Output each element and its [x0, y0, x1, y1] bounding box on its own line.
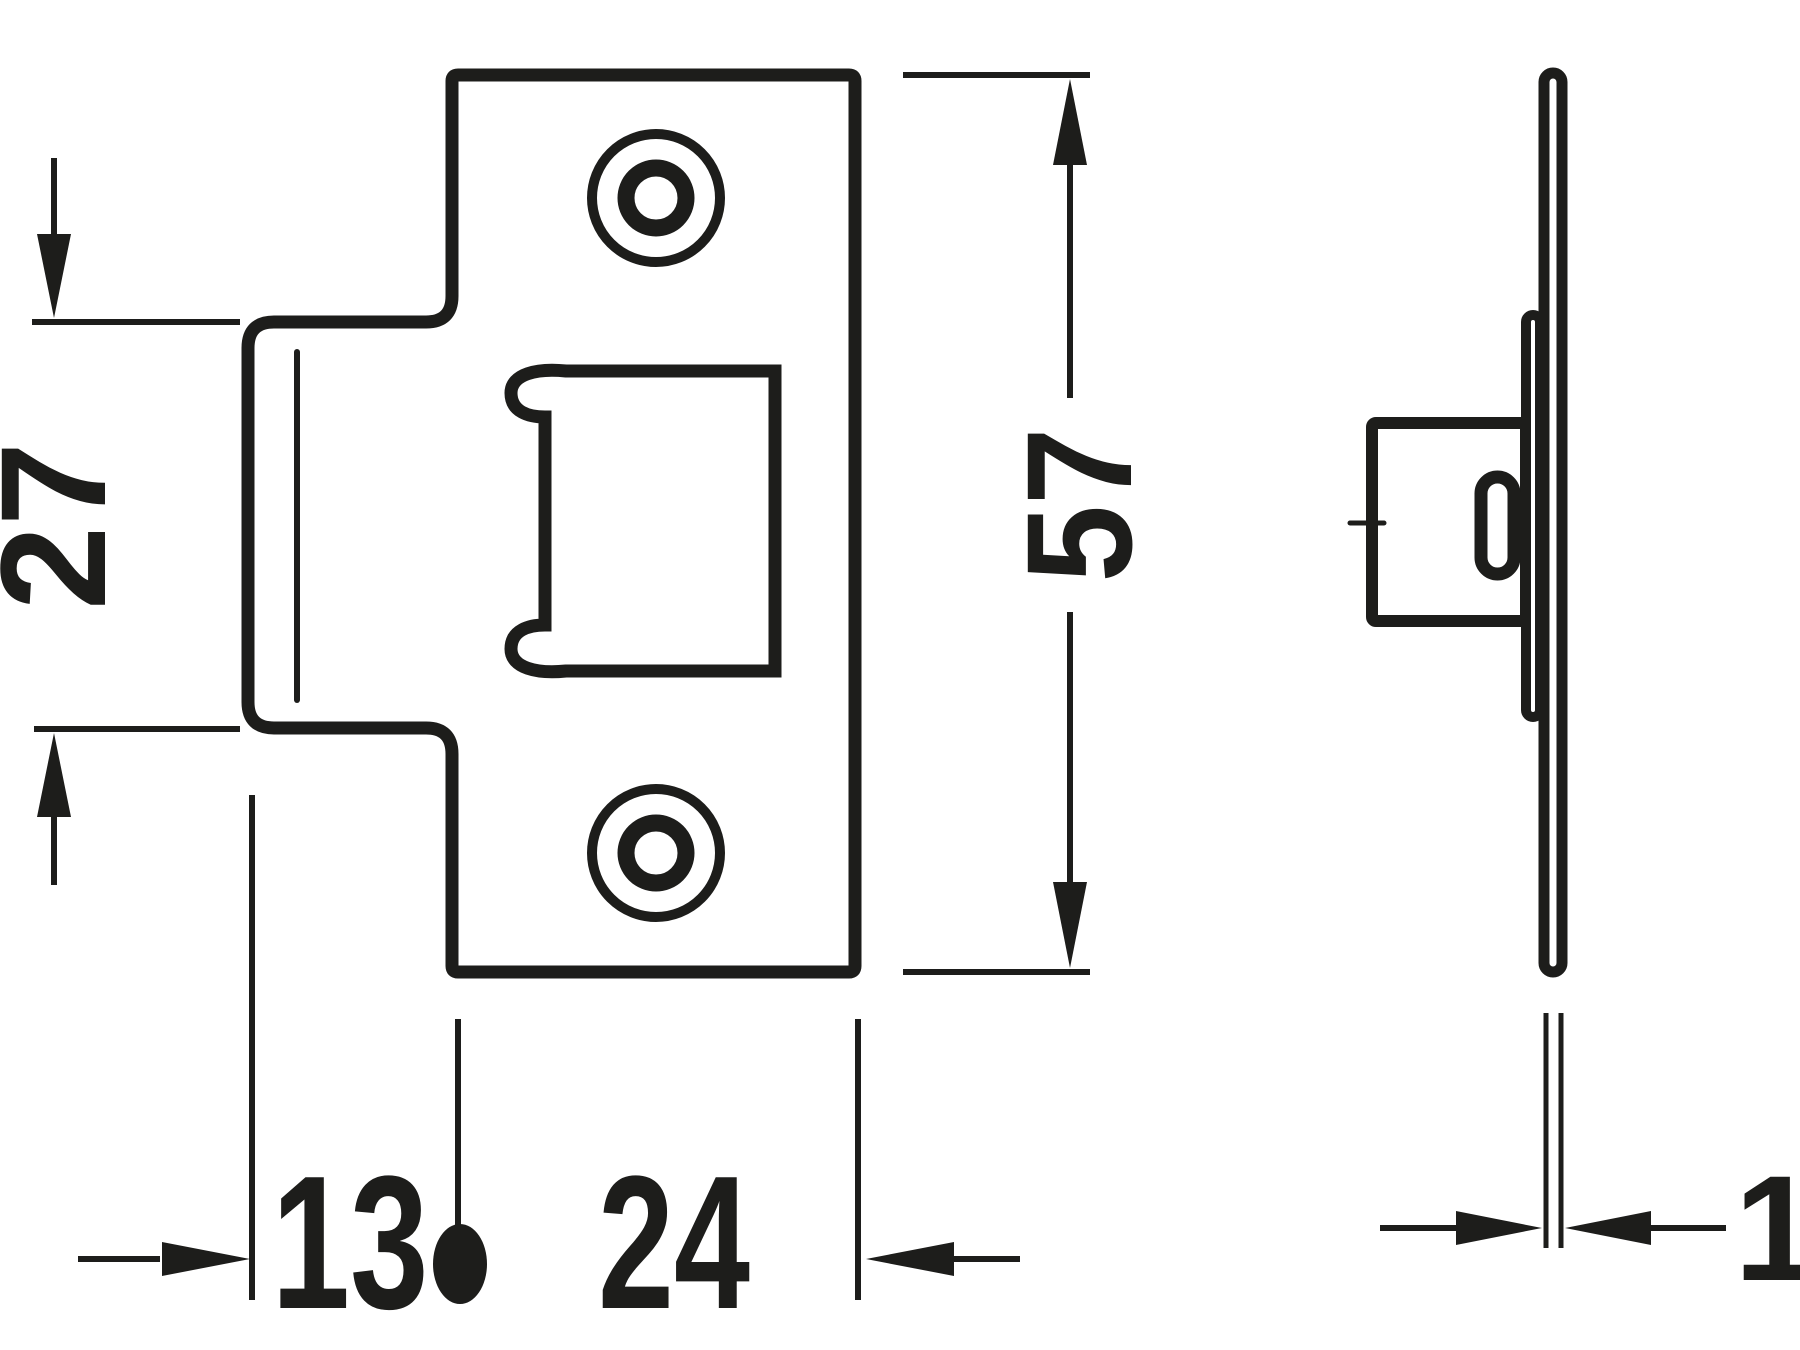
- dimension-27-label: 27: [0, 442, 137, 610]
- dimension-dot-terminator: [433, 1224, 487, 1304]
- dimension-24-label: 24: [598, 1137, 750, 1349]
- arrowhead-left-icon: [866, 1242, 954, 1276]
- technical-drawing-strike-plate: 27 57 13 24: [0, 0, 1800, 1350]
- arrowhead-down-icon: [1053, 882, 1087, 968]
- screw-hole-top-inner: [626, 168, 686, 228]
- dimension-57-label: 57: [995, 428, 1163, 583]
- dimension-13-label: 13: [272, 1137, 429, 1349]
- arrowhead-left-icon: [1565, 1211, 1651, 1245]
- dimension-plate-thickness: 1: [1380, 1013, 1800, 1312]
- latch-opening: [511, 370, 775, 671]
- dimension-plate-height: 57: [903, 75, 1163, 972]
- arrowhead-right-icon: [162, 1242, 250, 1276]
- arrowhead-down-icon: [37, 234, 71, 318]
- side-view: [1350, 73, 1562, 972]
- bent-lip-profile: [1526, 315, 1540, 717]
- arrowhead-up-icon: [1053, 79, 1087, 165]
- screw-hole-bottom-inner: [626, 823, 686, 883]
- slot-hole: [1481, 477, 1514, 574]
- plate-profile: [1544, 73, 1562, 972]
- arrowhead-right-icon: [1456, 1211, 1542, 1245]
- arrowhead-up-icon: [37, 733, 71, 817]
- drawing-svg: 27 57 13 24: [0, 0, 1800, 1350]
- dimension-1-label: 1: [1734, 1144, 1800, 1312]
- dimension-tab-height: 27: [0, 158, 240, 885]
- front-view: [248, 75, 855, 972]
